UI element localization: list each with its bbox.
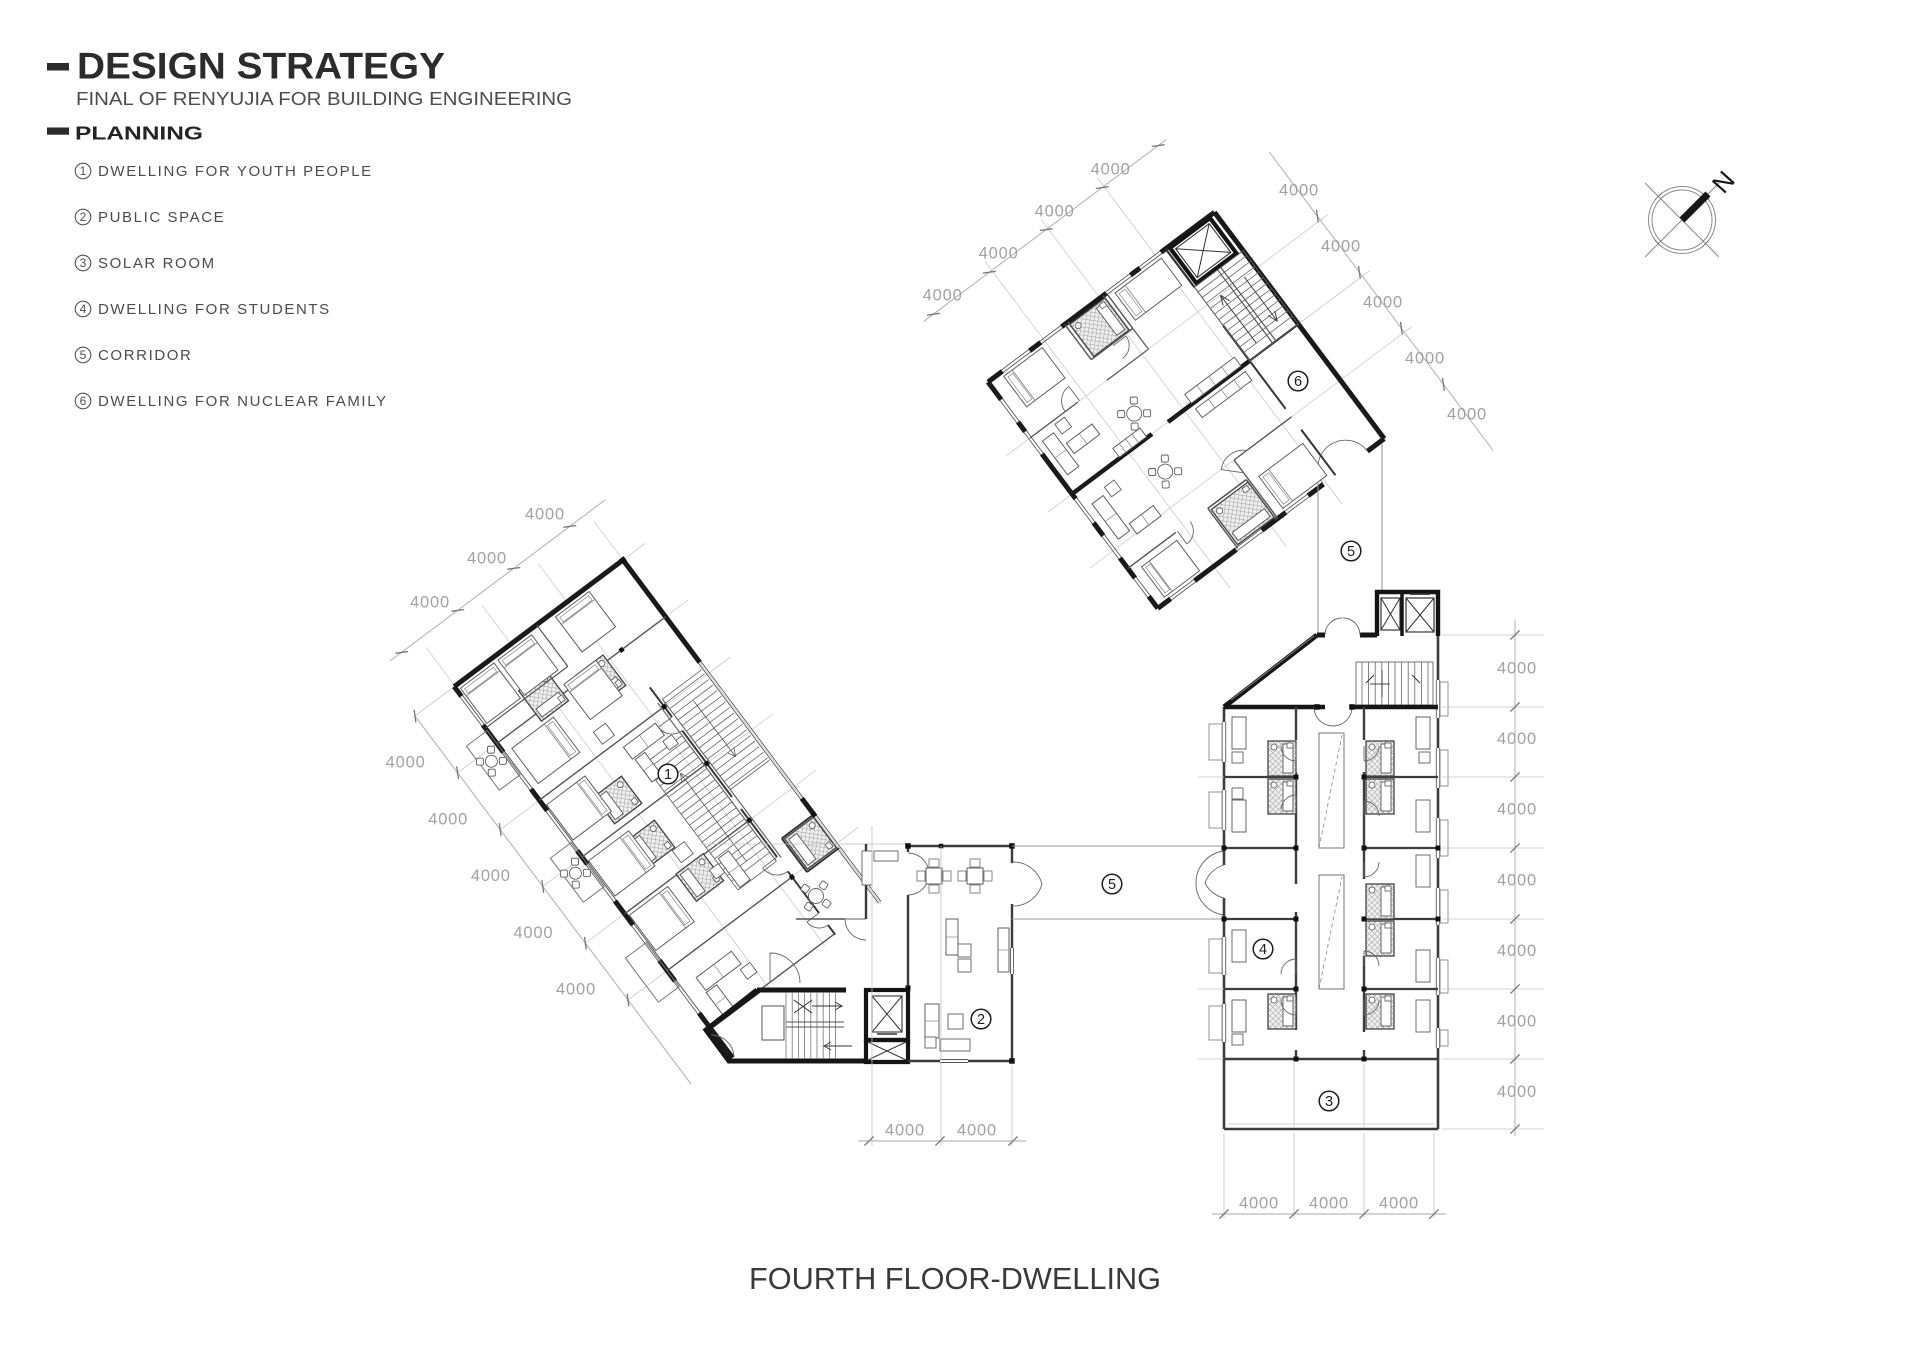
svg-text:SOLAR ROOM: SOLAR ROOM xyxy=(98,255,216,272)
svg-text:4000: 4000 xyxy=(1091,160,1131,178)
svg-text:FINAL OF RENYUJIA FOR BUILDING: FINAL OF RENYUJIA FOR BUILDING ENGINEERI… xyxy=(76,89,572,109)
svg-text:4000: 4000 xyxy=(1497,871,1537,889)
svg-text:3: 3 xyxy=(1325,1094,1333,1110)
svg-text:2: 2 xyxy=(977,1012,985,1028)
svg-text:4000: 4000 xyxy=(1239,1195,1279,1213)
svg-text:4000: 4000 xyxy=(386,754,426,772)
svg-text:4000: 4000 xyxy=(1497,730,1537,748)
svg-text:2: 2 xyxy=(80,210,87,224)
svg-text:4000: 4000 xyxy=(556,981,596,999)
svg-text:4000: 4000 xyxy=(1321,238,1361,256)
svg-text:5: 5 xyxy=(80,348,87,362)
svg-text:PUBLIC SPACE: PUBLIC SPACE xyxy=(98,209,225,226)
svg-text:4: 4 xyxy=(1259,942,1267,958)
svg-text:4000: 4000 xyxy=(1497,1083,1537,1101)
svg-text:4000: 4000 xyxy=(957,1122,997,1140)
svg-text:6: 6 xyxy=(1294,374,1302,390)
svg-text:PLANNING: PLANNING xyxy=(75,124,203,144)
svg-text:4000: 4000 xyxy=(1447,406,1487,424)
svg-text:4000: 4000 xyxy=(1497,1013,1537,1031)
svg-text:FOURTH FLOOR-DWELLING: FOURTH FLOOR-DWELLING xyxy=(749,1261,1161,1296)
svg-text:DWELLING FOR STUDENTS: DWELLING FOR STUDENTS xyxy=(98,301,331,318)
svg-text:4000: 4000 xyxy=(923,286,963,304)
svg-text:4000: 4000 xyxy=(1363,294,1403,312)
svg-text:4000: 4000 xyxy=(467,550,507,568)
svg-text:DWELLING FOR YOUTH PEOPLE: DWELLING FOR YOUTH PEOPLE xyxy=(98,163,373,180)
svg-text:4000: 4000 xyxy=(471,867,511,885)
svg-text:6: 6 xyxy=(80,394,87,408)
svg-text:5: 5 xyxy=(1347,544,1355,560)
svg-text:5: 5 xyxy=(1108,877,1116,893)
svg-text:4000: 4000 xyxy=(1497,660,1537,678)
svg-text:1: 1 xyxy=(664,767,672,783)
svg-text:DESIGN STRATEGY: DESIGN STRATEGY xyxy=(77,46,445,87)
svg-text:4000: 4000 xyxy=(979,244,1019,262)
svg-text:4000: 4000 xyxy=(428,810,468,828)
svg-text:3: 3 xyxy=(80,256,87,270)
svg-text:4000: 4000 xyxy=(1309,1195,1349,1213)
svg-text:4: 4 xyxy=(80,302,87,316)
svg-text:4000: 4000 xyxy=(1497,801,1537,819)
svg-text:4000: 4000 xyxy=(1279,182,1319,200)
svg-text:4000: 4000 xyxy=(1035,202,1075,220)
svg-text:4000: 4000 xyxy=(525,506,565,524)
svg-text:4000: 4000 xyxy=(885,1122,925,1140)
svg-text:CORRIDOR: CORRIDOR xyxy=(98,347,192,364)
svg-text:4000: 4000 xyxy=(1497,942,1537,960)
svg-text:4000: 4000 xyxy=(1379,1195,1419,1213)
svg-text:DWELLING FOR NUCLEAR FAMILY: DWELLING FOR NUCLEAR FAMILY xyxy=(98,393,388,410)
svg-text:4000: 4000 xyxy=(1405,350,1445,368)
svg-text:1: 1 xyxy=(80,164,87,178)
svg-text:4000: 4000 xyxy=(513,924,553,942)
svg-text:4000: 4000 xyxy=(410,594,450,612)
